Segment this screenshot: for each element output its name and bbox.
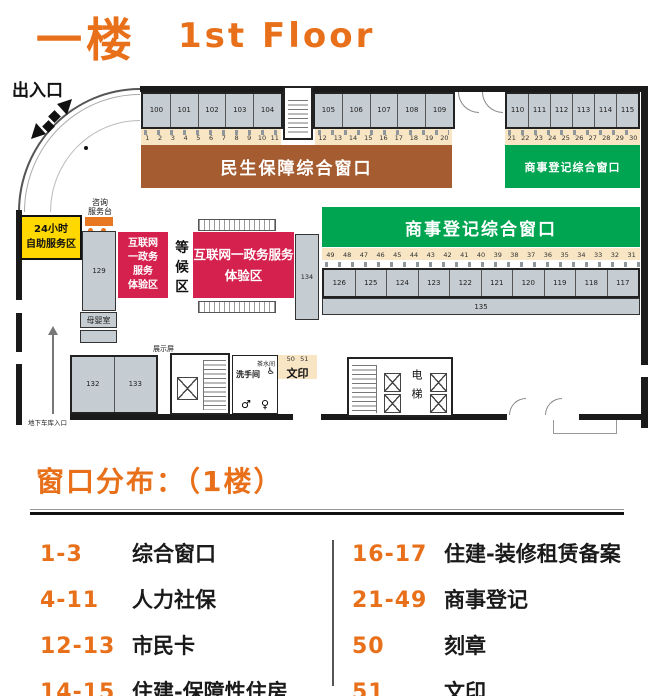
legend-rule [30, 509, 624, 510]
print-window-numbers: 5051 [278, 355, 317, 364]
self-service-line: 自助服务区 [26, 238, 76, 253]
window-number: 32 [606, 252, 623, 260]
window-number: 39 [489, 252, 506, 260]
accessible-icon: ♿ [267, 367, 275, 377]
nursery-room-stub [80, 330, 117, 343]
window-number: 30 [627, 135, 641, 143]
legend-row: 51 文印 [352, 676, 647, 696]
window-number: 25 [559, 135, 573, 143]
page-title-en: 1st Floor [178, 16, 375, 56]
room-cell: 100 [143, 94, 170, 127]
legend-label: 住建-保障性住房 [132, 676, 288, 696]
legend-row: 21-49 商事登记 [352, 584, 647, 614]
room-cell: 120 [512, 270, 544, 296]
door-gap-left-1 [16, 300, 22, 313]
window-number: 5 [192, 135, 205, 143]
rooms-top-left: 100101102103104 [141, 92, 283, 129]
legend-range: 1-3 [40, 542, 132, 567]
legend-label: 综合窗口 [132, 538, 216, 568]
experience-zone-line: 一政务 [128, 251, 158, 265]
window-number: 34 [573, 252, 590, 260]
counter-strip-mid: 121314151617181920 [315, 129, 452, 145]
legend-rule [30, 512, 624, 515]
room-cell: 132 [72, 357, 114, 412]
legend-label: 住建-装修租赁备案 [444, 538, 621, 568]
window-number: 10 [256, 135, 269, 143]
room-cell: 101 [170, 94, 198, 127]
male-icon: ♂ [241, 398, 251, 411]
room-cell: 108 [397, 94, 425, 127]
counter-strip-right: 21222324252627282930 [505, 129, 640, 145]
window-number: 12 [315, 135, 330, 143]
window-number: 49 [322, 252, 339, 260]
room-cell: 103 [225, 94, 253, 127]
window-number: 11 [268, 135, 281, 143]
door-gap-bottom-1 [293, 414, 321, 420]
door-arc-icon [545, 398, 562, 415]
window-number: 14 [345, 135, 360, 143]
room-cell: 102 [198, 94, 226, 127]
window-number: 19 [422, 135, 437, 143]
restroom-label: 洗手间 [236, 369, 260, 380]
window-number: 13 [330, 135, 345, 143]
window-numbers-left: 1234567891011 [141, 135, 281, 143]
window-numbers-mid: 121314151617181920 [315, 135, 452, 143]
window-number: 41 [456, 252, 473, 260]
window-number: 4 [179, 135, 192, 143]
banner-livelihood-windows: 民生保障综合窗口 [141, 145, 452, 188]
door-arc-icon [482, 92, 503, 113]
room-cell: 125 [355, 270, 387, 296]
elevator-block: 电梯 [347, 357, 453, 417]
legend-range: 50 [352, 634, 444, 659]
window-number: 29 [613, 135, 627, 143]
rooms-top-mid: 105106107108109 [313, 92, 455, 129]
legend-row: 16-17 住建-装修租赁备案 [352, 538, 647, 568]
room-cell: 111 [528, 94, 550, 127]
door-arc-icon [458, 92, 479, 113]
room-cell: 133 [114, 357, 157, 412]
window-number: 24 [546, 135, 560, 143]
window-number: 9 [243, 135, 256, 143]
nursery-room: 母婴室 [80, 312, 117, 328]
entrance-arrows-icon [26, 96, 78, 142]
legend-label: 刻章 [444, 630, 486, 660]
room-cell: 106 [342, 94, 370, 127]
room-135: 135 [322, 298, 640, 315]
room-cell: 107 [370, 94, 398, 127]
counter-ticks [325, 262, 643, 267]
window-number: 6 [205, 135, 218, 143]
window-number: 33 [590, 252, 607, 260]
legend-left-column: 1-3 综合窗口 4-11 人力社保 12-13 市民卡 14-15 住建-保障… [40, 538, 325, 696]
room-cell: 119 [544, 270, 576, 296]
elevator-shaft-icon [430, 394, 447, 413]
legend-range: 4-11 [40, 588, 132, 613]
room-cell: 124 [386, 270, 418, 296]
garage-entrance-label: 地下车库入口 [28, 420, 67, 427]
self-service-area: 24小时 自助服务区 [20, 215, 82, 260]
legend-range: 14-15 [40, 680, 132, 696]
legend-divider [332, 540, 334, 686]
print-room-label: 文印 [278, 365, 317, 381]
window-number: 37 [523, 252, 540, 260]
legend-range: 16-17 [352, 542, 444, 567]
experience-zone-line: 体验区 [225, 265, 263, 286]
window-number: 22 [519, 135, 533, 143]
window-number: 26 [573, 135, 587, 143]
window-number: 31 [623, 252, 640, 260]
page-title-zh: 一楼 [36, 4, 136, 70]
window-number: 27 [586, 135, 600, 143]
legend-range: 51 [352, 680, 444, 696]
window-number: 50 [284, 356, 298, 364]
room-cell: 104 [253, 94, 281, 127]
rooms-top-right: 110111112113114115 [505, 92, 640, 129]
experience-zone-line: 体验区 [128, 279, 158, 293]
elevator-shaft-icon [384, 373, 401, 392]
stairwell-top [283, 86, 313, 140]
window-number: 1 [141, 135, 154, 143]
waiting-area-label: 等候区 [170, 240, 190, 299]
banner-commerce-windows-right: 商事登记综合窗口 [505, 145, 640, 188]
window-number: 23 [532, 135, 546, 143]
garage-arrow [52, 334, 54, 414]
counter-strip-left: 1234567891011 [141, 129, 281, 145]
print-room: 5051 文印 [278, 355, 317, 379]
legend-right-column: 16-17 住建-装修租赁备案 21-49 商事登记 50 刻章 51 文印 [352, 538, 647, 696]
room-cell: 110 [507, 94, 528, 127]
window-number: 18 [406, 135, 421, 143]
window-number: 51 [298, 356, 312, 364]
window-number: 38 [506, 252, 523, 260]
door-arc-icon [509, 398, 526, 415]
experience-zone-large: 互联网一政务服务体验区 [193, 232, 294, 298]
window-number: 3 [166, 135, 179, 143]
room-cell: 105 [315, 94, 342, 127]
legend-label: 市民卡 [132, 630, 195, 660]
experience-zone-line: 互联网一政务服务 [193, 244, 293, 265]
room-cell: 117 [607, 270, 639, 296]
garage-arrow-head-icon [48, 326, 58, 335]
experience-zone-line: 互联网 [128, 237, 158, 251]
legend-title: 窗口分布：（1楼） [36, 460, 283, 500]
legend-row: 1-3 综合窗口 [40, 538, 325, 568]
window-number: 47 [355, 252, 372, 260]
stairs-icon [352, 365, 377, 413]
stairs-icon [203, 360, 226, 410]
window-number: 45 [389, 252, 406, 260]
legend-row: 4-11 人力社保 [40, 584, 325, 614]
window-number: 48 [339, 252, 356, 260]
self-service-line: 24小时 [34, 223, 68, 238]
window-number: 15 [361, 135, 376, 143]
room-cell: 122 [449, 270, 481, 296]
door-gap-right [641, 365, 648, 377]
window-number: 40 [473, 252, 490, 260]
window-number: 28 [600, 135, 614, 143]
window-numbers-center: 49484746454443424140393837363534333231 [322, 248, 640, 260]
elevator-shaft-icon [384, 394, 401, 413]
experience-zone-line: 服务 [133, 265, 153, 279]
legend-label: 人力社保 [132, 584, 216, 614]
rooms-bottom-left: 132133 [70, 355, 158, 414]
room-cell: 123 [418, 270, 450, 296]
legend-range: 21-49 [352, 588, 444, 613]
experience-zone-small: 互联网一政务服务体验区 [118, 232, 168, 298]
stair-elevator-block [170, 353, 230, 415]
legend-row: 50 刻章 [352, 630, 647, 660]
escalator-icon [198, 219, 276, 231]
escalator-icon [198, 301, 276, 313]
room-129: 129 [82, 231, 116, 311]
legend-row: 12-13 市民卡 [40, 630, 325, 660]
entrance-vestibule [553, 420, 617, 434]
female-icon: ♀ [261, 398, 269, 411]
legend-row: 14-15 住建-保障性住房 [40, 676, 325, 696]
consult-desk [85, 217, 113, 226]
floor-map-page: 一楼 1st Floor 出入口 100101102103104 1051061… [0, 0, 654, 696]
window-number: 46 [372, 252, 389, 260]
legend-range: 12-13 [40, 634, 132, 659]
room-cell: 109 [425, 94, 453, 127]
window-number: 16 [376, 135, 391, 143]
room-cell: 113 [572, 94, 594, 127]
room-cell: 114 [594, 94, 616, 127]
legend-label: 商事登记 [444, 584, 528, 614]
elevator-shaft-icon [177, 377, 198, 400]
legend-label: 文印 [444, 676, 486, 696]
banner-commerce-windows-center: 商事登记综合窗口 [322, 207, 640, 247]
stairs-icon [288, 100, 308, 134]
restroom-block: 茶水间 洗手间 ♿ ♂ ♀ [232, 355, 278, 414]
window-number: 17 [391, 135, 406, 143]
elevator-shaft-icon [430, 373, 447, 392]
window-number: 2 [154, 135, 167, 143]
room-cell: 112 [550, 94, 572, 127]
consult-desk-label: 咨询 服务台 [80, 198, 120, 216]
window-number: 20 [437, 135, 452, 143]
window-number: 35 [556, 252, 573, 260]
window-number: 44 [406, 252, 423, 260]
window-number: 36 [540, 252, 557, 260]
room-cell: 126 [324, 270, 355, 296]
room-cell: 121 [481, 270, 513, 296]
window-number: 7 [217, 135, 230, 143]
door-gap-left-2 [16, 352, 22, 364]
window-number: 21 [505, 135, 519, 143]
window-number: 43 [422, 252, 439, 260]
room-cell: 115 [616, 94, 638, 127]
room-cell: 118 [575, 270, 607, 296]
rooms-center: 126125124123122121120119118117 [322, 268, 640, 298]
window-numbers-right: 21222324252627282930 [505, 135, 640, 143]
room-134: 134 [295, 234, 319, 320]
revolving-door-pivot [84, 146, 88, 150]
window-number: 8 [230, 135, 243, 143]
elevator-label: 电梯 [408, 369, 424, 407]
window-number: 42 [439, 252, 456, 260]
